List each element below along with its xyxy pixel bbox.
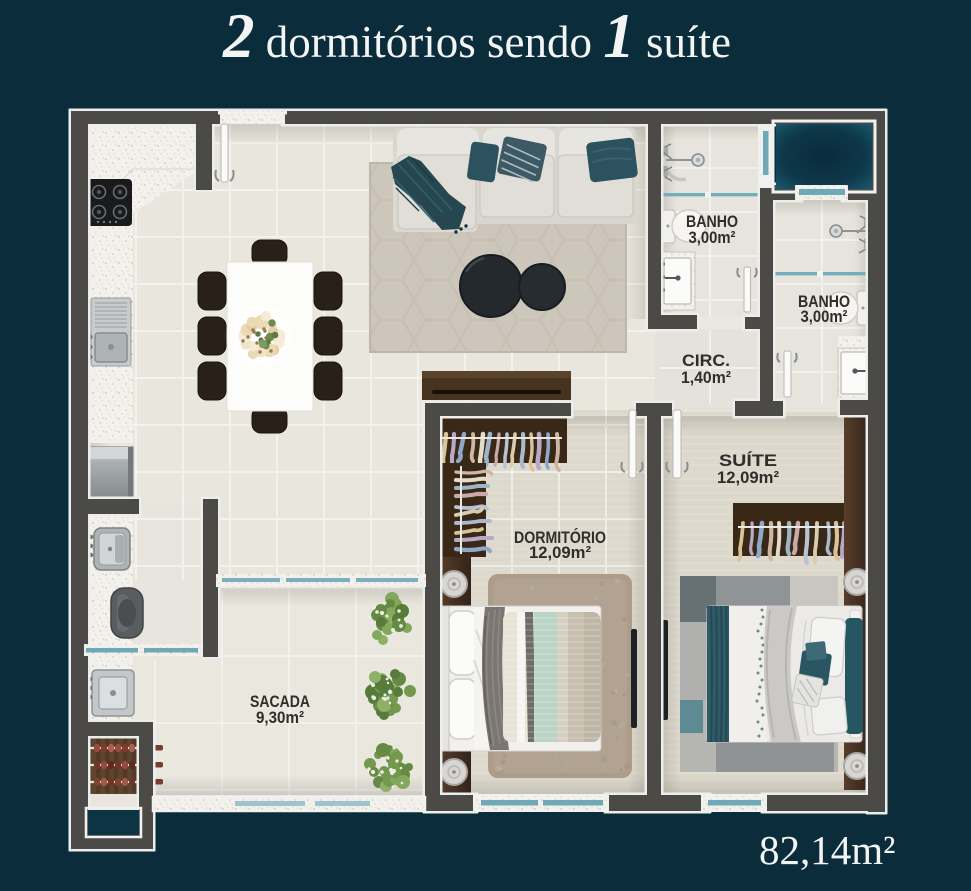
svg-text:82,14m²: 82,14m² bbox=[759, 827, 895, 873]
svg-text:9,30m²: 9,30m² bbox=[256, 709, 304, 727]
svg-text:12,09m²: 12,09m² bbox=[529, 544, 591, 562]
svg-text:SUÍTE: SUÍTE bbox=[719, 451, 777, 470]
svg-text:3,00m²: 3,00m² bbox=[801, 308, 848, 326]
svg-text:12,09m²: 12,09m² bbox=[717, 469, 779, 487]
svg-text:CIRC.: CIRC. bbox=[682, 351, 730, 370]
svg-text:1,40m²: 1,40m² bbox=[681, 369, 731, 387]
svg-text:3,00m²: 3,00m² bbox=[689, 229, 736, 247]
